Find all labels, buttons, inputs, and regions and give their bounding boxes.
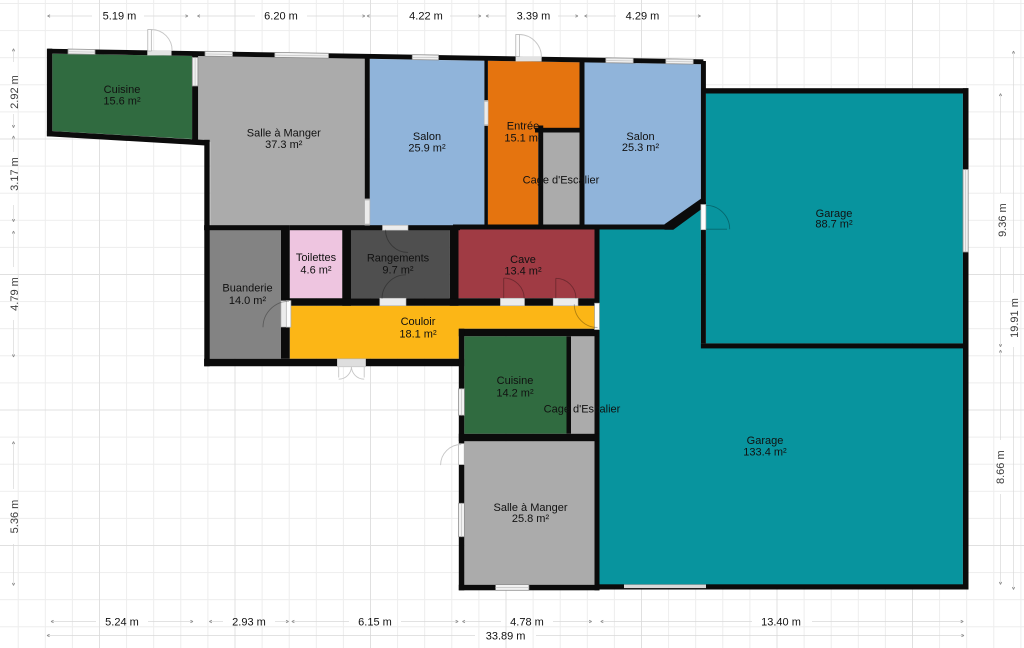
svg-text:5.36 m: 5.36 m bbox=[9, 500, 21, 534]
svg-text:25.8 m²: 25.8 m² bbox=[512, 513, 550, 525]
svg-text:25.9 m²: 25.9 m² bbox=[408, 143, 446, 155]
svg-text:3.17 m: 3.17 m bbox=[9, 157, 21, 191]
svg-text:37.3 m²: 37.3 m² bbox=[265, 139, 303, 151]
svg-text:3.39 m: 3.39 m bbox=[517, 11, 551, 23]
svg-text:4.6 m²: 4.6 m² bbox=[300, 265, 332, 277]
svg-text:Cave: Cave bbox=[510, 254, 536, 266]
svg-text:15.6 m²: 15.6 m² bbox=[103, 95, 141, 107]
svg-text:33.89 m: 33.89 m bbox=[486, 631, 526, 643]
svg-text:4.79 m: 4.79 m bbox=[9, 277, 21, 311]
svg-text:Rangements: Rangements bbox=[367, 253, 430, 265]
svg-text:19.91 m: 19.91 m bbox=[1009, 298, 1021, 338]
svg-text:Salle à Manger: Salle à Manger bbox=[494, 502, 568, 514]
svg-text:Cage d'Escalier: Cage d'Escalier bbox=[523, 175, 600, 187]
svg-text:Cuisine: Cuisine bbox=[497, 375, 534, 387]
svg-text:Salle à Manger: Salle à Manger bbox=[247, 128, 321, 140]
svg-text:Entrée: Entrée bbox=[507, 121, 539, 133]
svg-text:4.29 m: 4.29 m bbox=[626, 11, 660, 23]
svg-text:Toilettes: Toilettes bbox=[296, 252, 337, 264]
svg-text:8.66 m: 8.66 m bbox=[995, 450, 1007, 484]
svg-text:9.36 m: 9.36 m bbox=[997, 203, 1009, 237]
svg-text:13.40 m: 13.40 m bbox=[761, 617, 801, 629]
svg-text:15.1 m²: 15.1 m² bbox=[504, 133, 542, 145]
svg-text:Salon: Salon bbox=[413, 131, 441, 143]
svg-text:6.15 m: 6.15 m bbox=[358, 617, 392, 629]
svg-text:Buanderie: Buanderie bbox=[222, 283, 272, 295]
svg-text:88.7 m²: 88.7 m² bbox=[815, 219, 853, 231]
svg-text:4.22 m: 4.22 m bbox=[409, 11, 443, 23]
svg-text:5.19 m: 5.19 m bbox=[103, 11, 137, 23]
svg-text:14.0 m²: 14.0 m² bbox=[229, 295, 267, 307]
svg-text:Garage: Garage bbox=[747, 435, 784, 447]
svg-text:9.7 m²: 9.7 m² bbox=[382, 265, 414, 277]
svg-text:Cage d'Escalier: Cage d'Escalier bbox=[544, 404, 621, 416]
svg-text:13.4 m²: 13.4 m² bbox=[504, 266, 542, 278]
svg-text:Couloir: Couloir bbox=[401, 316, 436, 328]
svg-text:6.20 m: 6.20 m bbox=[264, 11, 298, 23]
svg-text:14.2 m²: 14.2 m² bbox=[496, 387, 534, 399]
svg-text:133.4 m²: 133.4 m² bbox=[743, 446, 787, 458]
svg-text:4.78 m: 4.78 m bbox=[510, 617, 544, 629]
svg-text:18.1 m²: 18.1 m² bbox=[399, 329, 437, 341]
svg-text:25.3 m²: 25.3 m² bbox=[622, 142, 660, 154]
svg-text:5.24 m: 5.24 m bbox=[105, 617, 139, 629]
svg-text:2.93 m: 2.93 m bbox=[232, 617, 266, 629]
svg-text:2.92 m: 2.92 m bbox=[9, 75, 21, 109]
